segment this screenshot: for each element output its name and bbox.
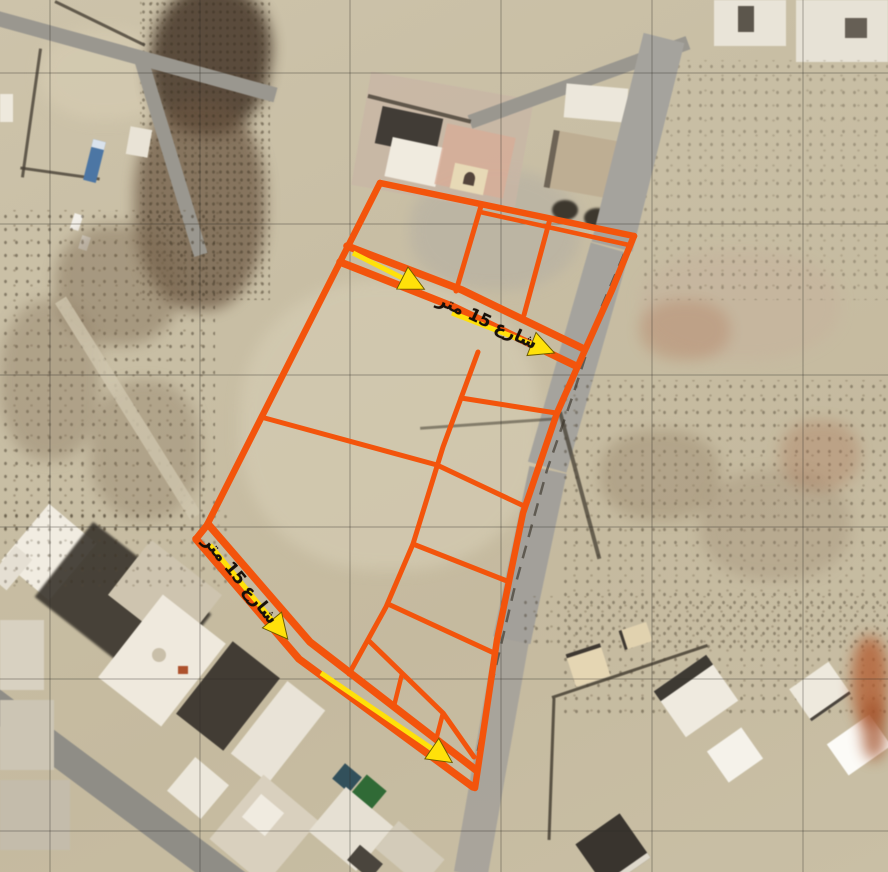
- parcel-boundary-west: [208, 183, 380, 523]
- parcel-divider: [456, 206, 481, 291]
- measure-arrow-icon: [321, 673, 450, 761]
- satellite-map-view: شارع 15 متر شارع 15 متر: [0, 0, 888, 872]
- parcel-boundary-north: [380, 183, 634, 236]
- plan-overlay: [0, 0, 888, 872]
- parcel-divider: [261, 417, 437, 465]
- parcel-rung: [413, 544, 507, 581]
- parcel-rung: [388, 604, 494, 653]
- parcel-spine: [349, 352, 478, 674]
- parcel-divider: [524, 219, 550, 315]
- parcel-rung: [437, 465, 524, 506]
- parcel-rung: [461, 398, 556, 413]
- parcel-divider: [436, 713, 443, 740]
